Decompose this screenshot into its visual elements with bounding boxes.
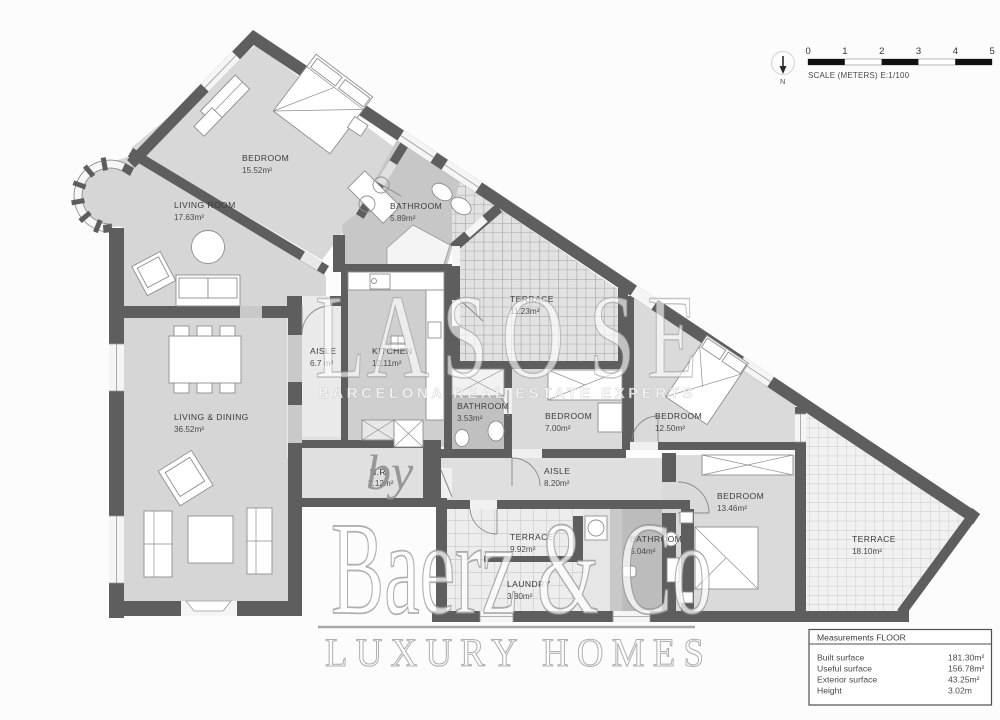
svg-text:156.78m²: 156.78m² <box>948 664 984 674</box>
svg-text:0: 0 <box>806 46 811 57</box>
svg-text:BEDROOM: BEDROOM <box>545 411 592 421</box>
svg-text:17.63m²: 17.63m² <box>174 213 204 222</box>
svg-text:by: by <box>366 444 414 500</box>
svg-text:TERRACE: TERRACE <box>852 534 896 544</box>
svg-text:BARCELONA REAL ESTATE EXPERTS: BARCELONA REAL ESTATE EXPERTS <box>318 385 698 402</box>
svg-text:13.46m²: 13.46m² <box>717 504 747 513</box>
svg-text:Measurements FLOOR: Measurements FLOOR <box>817 633 906 643</box>
svg-text:3: 3 <box>916 46 921 57</box>
svg-text:8.20m²: 8.20m² <box>544 479 570 488</box>
svg-text:O: O <box>502 270 564 403</box>
svg-text:12.50m²: 12.50m² <box>655 424 685 433</box>
svg-text:SCALE (METERS) E:1/100: SCALE (METERS) E:1/100 <box>808 71 910 80</box>
svg-text:5.89m²: 5.89m² <box>390 214 416 223</box>
svg-text:181.30m²: 181.30m² <box>948 653 984 663</box>
svg-text:BEDROOM: BEDROOM <box>242 153 289 163</box>
svg-text:5: 5 <box>990 46 995 57</box>
svg-text:7.00m²: 7.00m² <box>545 424 571 433</box>
svg-text:15.52m²: 15.52m² <box>242 166 272 175</box>
svg-text:36.52m²: 36.52m² <box>174 425 204 434</box>
svg-text:3.02m: 3.02m <box>948 686 972 696</box>
svg-text:BEDROOM: BEDROOM <box>655 411 702 421</box>
svg-text:A: A <box>367 270 429 403</box>
svg-text:4: 4 <box>953 46 958 57</box>
svg-text:N: N <box>780 77 785 86</box>
svg-text:3.53m²: 3.53m² <box>457 414 483 423</box>
svg-text:Baerz & Co: Baerz & Co <box>331 494 712 642</box>
svg-text:LIVING ROOM: LIVING ROOM <box>174 200 236 210</box>
svg-text:2: 2 <box>879 46 884 57</box>
svg-text:LUXURY HOMES: LUXURY HOMES <box>325 632 712 676</box>
svg-text:BATHROOM: BATHROOM <box>390 201 442 211</box>
svg-text:1: 1 <box>842 46 847 57</box>
svg-text:AISLE: AISLE <box>544 466 570 476</box>
svg-text:18.10m²: 18.10m² <box>852 547 882 556</box>
svg-text:Exterior surface: Exterior surface <box>817 675 877 685</box>
svg-text:43.25m²: 43.25m² <box>948 675 980 685</box>
svg-text:Height: Height <box>817 686 842 696</box>
svg-text:BEDROOM: BEDROOM <box>717 491 764 501</box>
svg-text:Useful surface: Useful surface <box>817 664 872 674</box>
svg-text:LIVING & DINING: LIVING & DINING <box>174 412 249 422</box>
svg-text:Built surface: Built surface <box>817 653 865 663</box>
